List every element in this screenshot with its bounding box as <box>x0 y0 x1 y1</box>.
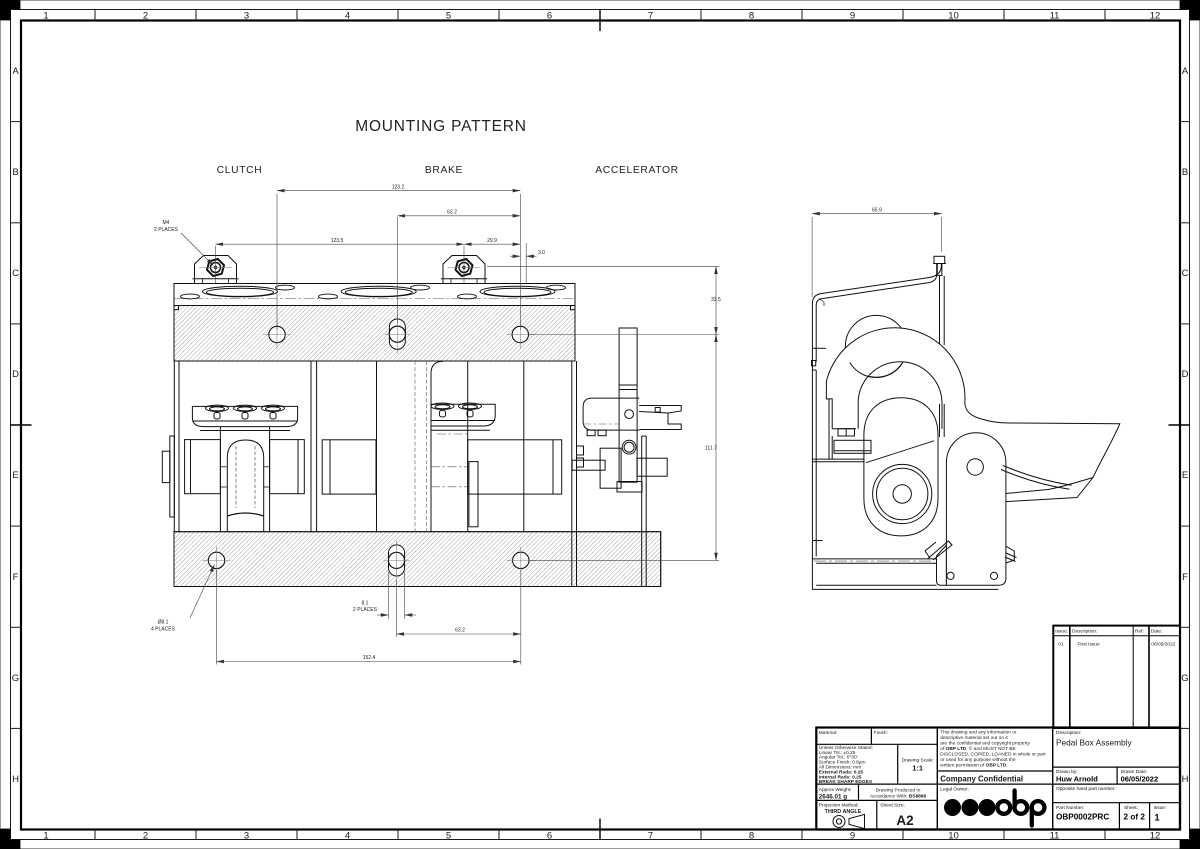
svg-text:12: 12 <box>1150 11 1161 22</box>
svg-text:5: 5 <box>446 11 451 22</box>
svg-text:Sheet Size:: Sheet Size: <box>880 803 905 809</box>
svg-text:3: 3 <box>244 831 249 842</box>
svg-text:Sheet:: Sheet: <box>1124 805 1138 811</box>
svg-text:Accordance With: BS8888: Accordance With: BS8888 <box>870 794 927 800</box>
svg-text:Company Confidential: Company Confidential <box>940 774 1023 783</box>
svg-text:are the confidential and copyr: are the confidential and copyright prope… <box>940 740 1030 746</box>
svg-text:4: 4 <box>345 831 350 842</box>
svg-text:7: 7 <box>648 11 653 22</box>
svg-text:10: 10 <box>948 11 959 22</box>
svg-text:06/05/2022: 06/05/2022 <box>1121 775 1159 784</box>
svg-text:2 PLACES: 2 PLACES <box>154 227 179 233</box>
svg-text:Approx Weight:: Approx Weight: <box>819 787 852 793</box>
svg-text:Ref:: Ref: <box>1135 629 1144 635</box>
svg-text:06/05/2022: 06/05/2022 <box>1151 642 1175 648</box>
svg-text:Date:: Date: <box>1151 629 1162 635</box>
svg-text:29.9: 29.9 <box>487 238 497 244</box>
svg-text:A: A <box>1182 66 1189 77</box>
svg-text:Description:: Description: <box>1056 730 1081 736</box>
svg-text:C: C <box>12 268 19 279</box>
svg-text:5: 5 <box>446 831 451 842</box>
svg-text:F: F <box>1182 572 1188 583</box>
svg-text:11: 11 <box>1050 831 1060 842</box>
svg-text:This drawing and any informati: This drawing and any information or <box>940 729 1017 735</box>
svg-text:7: 7 <box>648 831 653 842</box>
svg-text:C: C <box>1182 268 1189 279</box>
svg-text:9: 9 <box>850 11 855 22</box>
svg-text:Pedal Box Assembly: Pedal Box Assembly <box>1056 737 1132 747</box>
svg-text:written permission of OBP LTD.: written permission of OBP LTD. <box>940 762 1007 768</box>
svg-text:A2: A2 <box>896 813 913 828</box>
svg-text:ACCELERATOR: ACCELERATOR <box>595 165 678 176</box>
svg-text:M4: M4 <box>163 220 170 226</box>
svg-text:Issue:: Issue: <box>1055 629 1068 635</box>
svg-text:D: D <box>12 369 19 380</box>
svg-text:63.2: 63.2 <box>447 210 457 216</box>
svg-text:BRAKE: BRAKE <box>425 165 463 176</box>
svg-text:Drawing Produced In: Drawing Produced In <box>876 787 921 793</box>
svg-text:10: 10 <box>948 831 959 842</box>
svg-text:11: 11 <box>1050 11 1060 22</box>
svg-text:of OBP LTD. © and MUST NOT BE: of OBP LTD. © and MUST NOT BE <box>940 745 1015 752</box>
svg-text:63.2: 63.2 <box>455 628 465 634</box>
svg-text:DISCLOSED, COPIED, LOANED in w: DISCLOSED, COPIED, LOANED in whole or pa… <box>940 751 1046 757</box>
svg-text:B: B <box>1182 167 1188 178</box>
svg-text:2 of 2: 2 of 2 <box>1124 813 1146 822</box>
svg-text:2: 2 <box>143 11 148 22</box>
svg-text:Ø8.1: Ø8.1 <box>158 620 169 626</box>
svg-text:152.4: 152.4 <box>363 655 376 661</box>
svg-text:4 PLACES: 4 PLACES <box>151 627 176 633</box>
svg-text:H: H <box>12 774 19 785</box>
svg-text:F: F <box>13 572 19 583</box>
svg-text:H: H <box>1182 774 1189 785</box>
svg-text:B: B <box>12 167 18 178</box>
svg-text:First Issue: First Issue <box>1078 642 1100 648</box>
svg-text:4: 4 <box>345 11 350 22</box>
svg-text:65.9: 65.9 <box>872 207 882 213</box>
svg-text:THIRD ANGLE: THIRD ANGLE <box>825 809 862 815</box>
svg-text:Huw Arnold: Huw Arnold <box>1056 775 1098 784</box>
svg-text:A: A <box>12 66 19 77</box>
svg-text:01: 01 <box>1058 642 1064 648</box>
svg-text:33.5: 33.5 <box>711 297 721 303</box>
svg-text:G: G <box>1181 673 1188 684</box>
svg-text:Description:: Description: <box>1072 629 1097 635</box>
svg-text:D: D <box>1182 369 1189 380</box>
svg-text:1: 1 <box>43 11 48 22</box>
svg-text:Issue:: Issue: <box>1154 805 1167 811</box>
svg-text:123.2: 123.2 <box>392 184 405 190</box>
svg-text:6: 6 <box>547 831 552 842</box>
svg-text:Part Number:: Part Number: <box>1056 805 1085 811</box>
svg-text:CLUTCH: CLUTCH <box>217 165 263 176</box>
svg-text:8.1: 8.1 <box>362 601 369 607</box>
svg-text:8: 8 <box>749 11 754 22</box>
svg-text:12: 12 <box>1150 831 1161 842</box>
svg-text:Opposite hand part number:: Opposite hand part number: <box>1056 786 1116 792</box>
svg-text:Projection Method:: Projection Method: <box>819 803 859 809</box>
svg-text:9: 9 <box>850 831 855 842</box>
svg-text:Legal Owner:: Legal Owner: <box>940 787 969 793</box>
svg-text:3: 3 <box>244 11 249 22</box>
svg-text:E: E <box>12 470 18 481</box>
svg-text:Finish:: Finish: <box>874 730 888 736</box>
svg-text:2646.01 g: 2646.01 g <box>819 793 848 800</box>
svg-text:3.0: 3.0 <box>538 250 545 256</box>
svg-text:6: 6 <box>547 11 552 22</box>
svg-text:descriptive material set out o: descriptive material set out on it <box>940 735 1008 741</box>
svg-text:1: 1 <box>43 831 48 842</box>
svg-text:2 PLACES: 2 PLACES <box>353 607 378 613</box>
svg-text:111.7: 111.7 <box>705 446 717 452</box>
svg-text:2: 2 <box>143 831 148 842</box>
svg-text:8: 8 <box>749 831 754 842</box>
svg-text:1: 1 <box>1155 812 1160 822</box>
svg-text:Material:: Material: <box>819 730 837 736</box>
svg-text:or used for any purpose withou: or used for any purpose without the <box>940 757 1016 763</box>
svg-text:E: E <box>1182 470 1188 481</box>
svg-text:BREAK SHARP EDGES: BREAK SHARP EDGES <box>819 779 873 785</box>
svg-text:123.5: 123.5 <box>331 238 344 244</box>
svg-text:OBP0002PRC: OBP0002PRC <box>1056 813 1109 822</box>
svg-text:1:1: 1:1 <box>912 764 923 773</box>
svg-text:MOUNTING PATTERN: MOUNTING PATTERN <box>355 118 527 135</box>
svg-text:G: G <box>12 673 19 684</box>
